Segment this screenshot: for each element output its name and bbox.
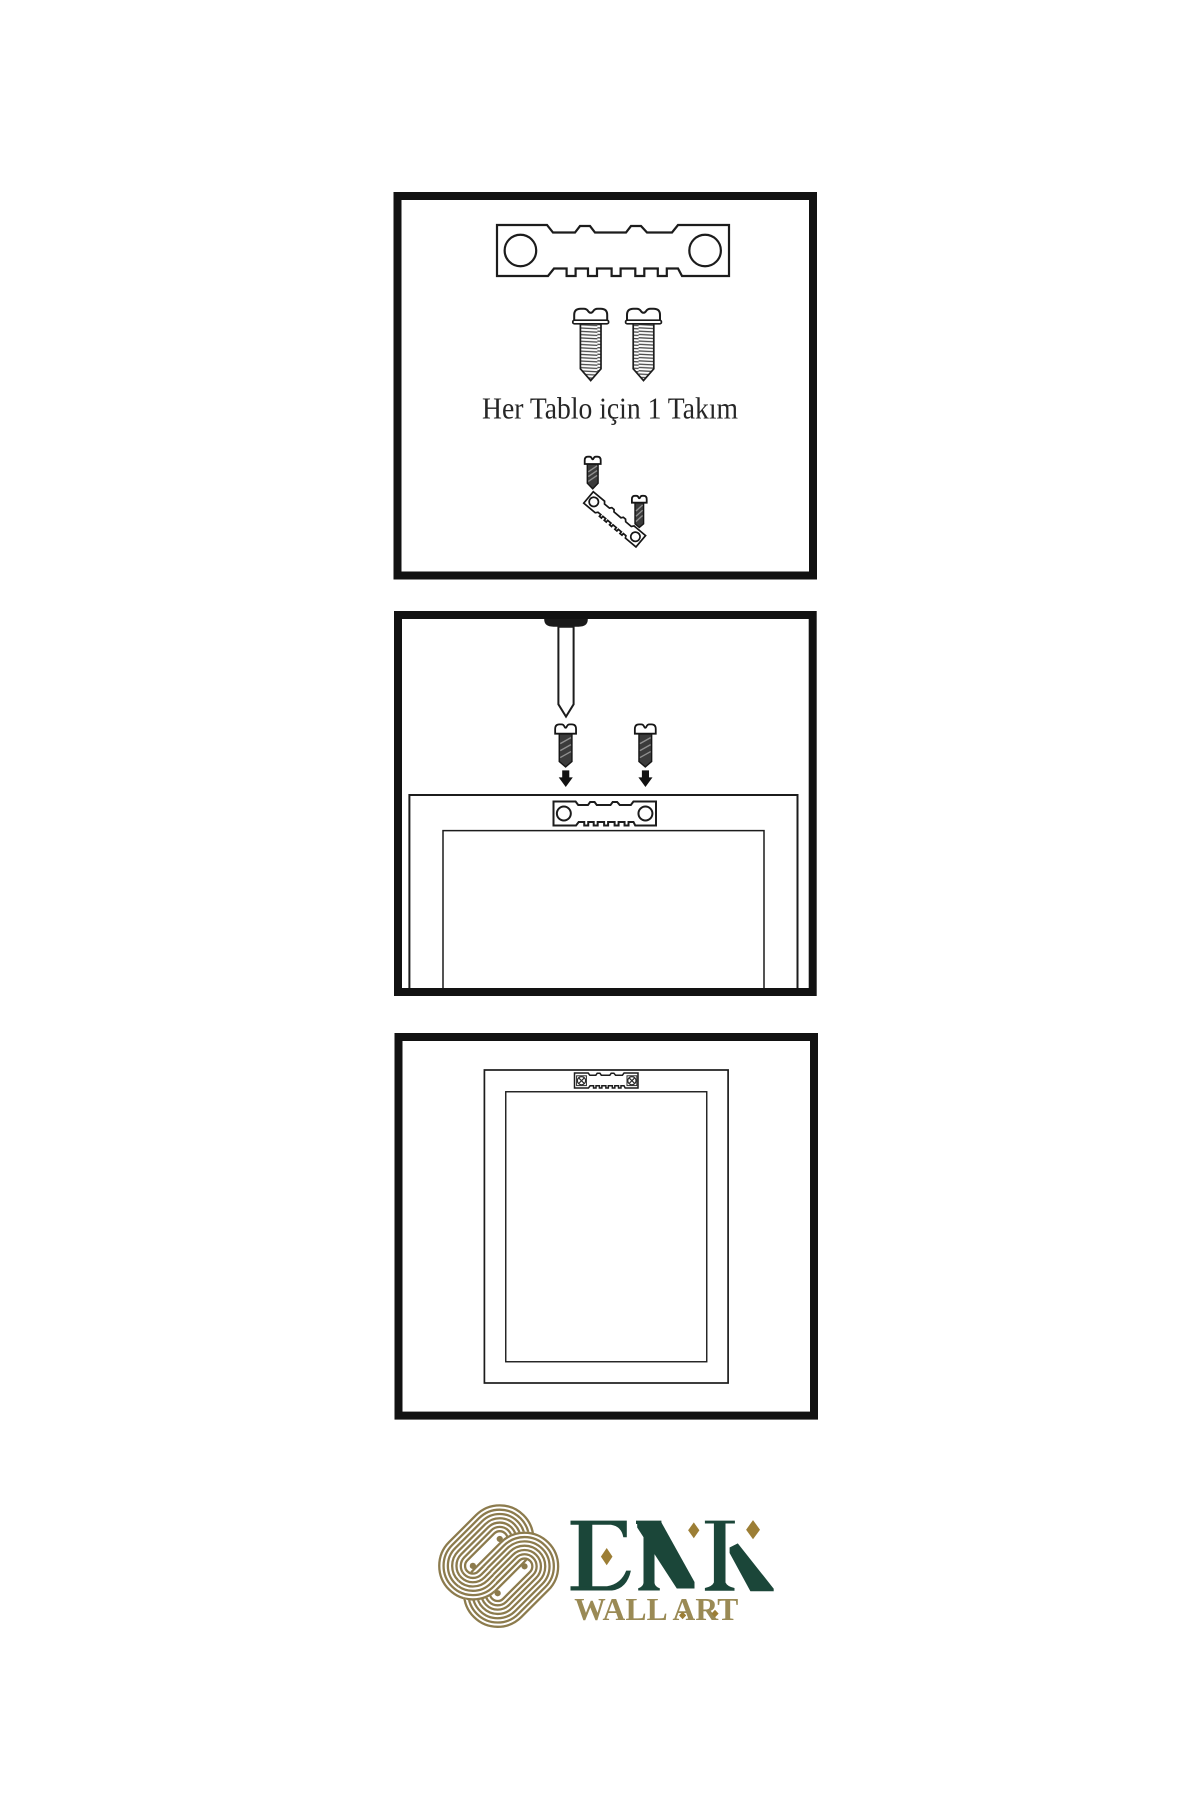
svg-text:WALL ART: WALL ART [574,1592,738,1627]
svg-text:Her Tablo için 1 Takım: Her Tablo için 1 Takım [482,392,738,426]
